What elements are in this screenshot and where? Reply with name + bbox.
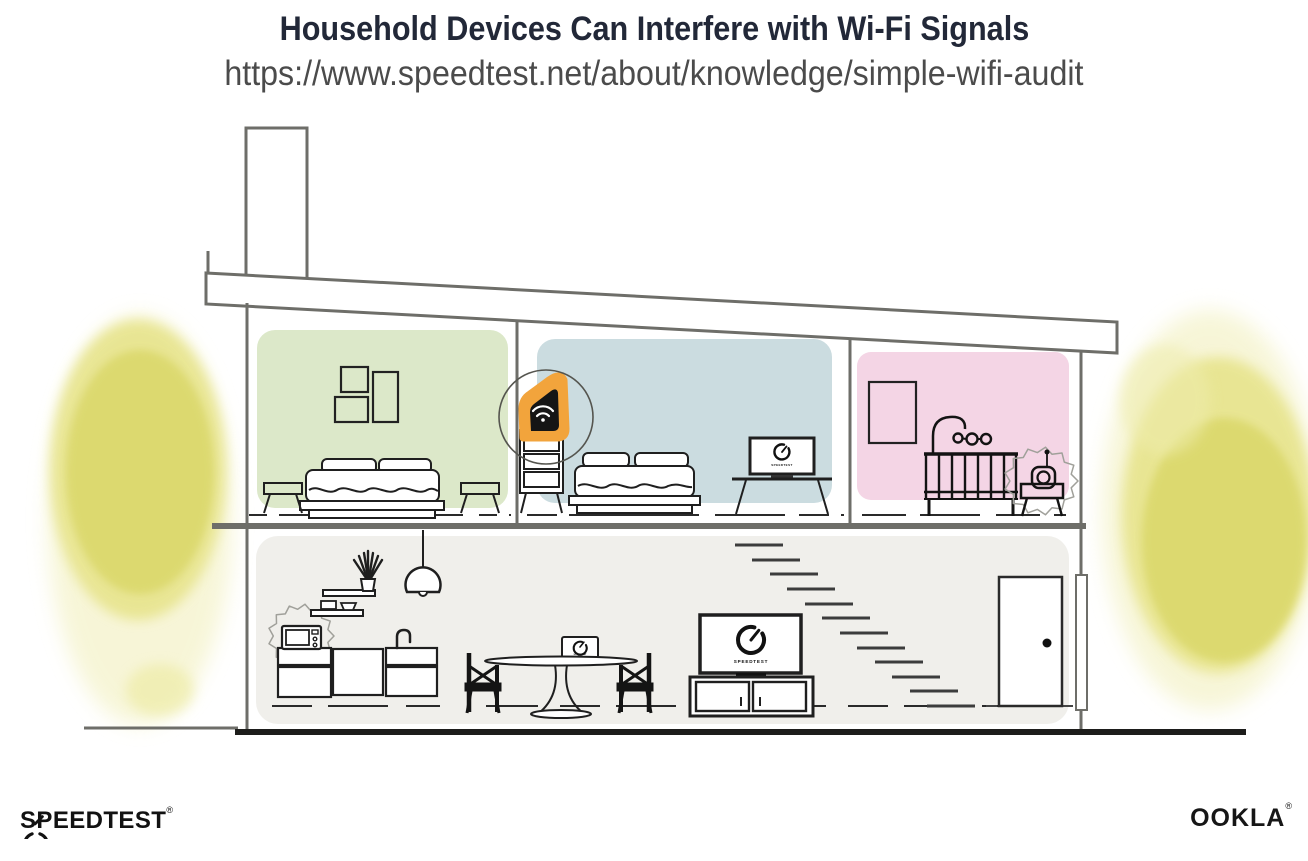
- infographic-page: Household Devices Can Interfere with Wi-…: [0, 0, 1308, 861]
- foliage-right: [1102, 310, 1308, 710]
- ookla-wordmark: OOKLA: [1190, 804, 1285, 832]
- doorknob: [1043, 639, 1052, 648]
- green-room-bed: [300, 459, 444, 518]
- downspout: [1076, 575, 1087, 710]
- tv-brand-label: SPEEDTEST: [734, 659, 769, 664]
- ookla-logo: OOKLA®: [1190, 804, 1292, 833]
- chimney: [246, 128, 307, 280]
- foliage-left: [48, 315, 232, 725]
- house-illustration: SPEEDTEST: [0, 0, 1308, 861]
- speedtest-logo: SPEEDTEST®: [20, 807, 173, 835]
- mattress: [575, 466, 694, 497]
- pillow: [635, 453, 688, 467]
- entry-door: [986, 577, 1073, 706]
- bed-base: [577, 505, 692, 513]
- mattress: [306, 470, 439, 502]
- plant-pot: [361, 579, 375, 591]
- bed-platform: [569, 496, 700, 505]
- living-room-tv-area: SPEEDTEST: [690, 615, 813, 716]
- bed-platform: [300, 501, 444, 510]
- blue-room-bed: [569, 453, 700, 513]
- registered-mark: ®: [166, 805, 173, 815]
- dining-table-top: [485, 657, 637, 666]
- pillow: [583, 453, 629, 467]
- speedtest-gauge-icon: [20, 807, 52, 839]
- living-room-tv: [700, 615, 801, 673]
- cup: [321, 601, 336, 609]
- table-base: [531, 710, 591, 718]
- registered-mark: ®: [1285, 801, 1292, 811]
- bed-base: [309, 510, 435, 518]
- bedroom-tv-brand-label: SPEEDTEST: [771, 463, 792, 467]
- microwave: [282, 626, 321, 649]
- bowl: [341, 603, 356, 610]
